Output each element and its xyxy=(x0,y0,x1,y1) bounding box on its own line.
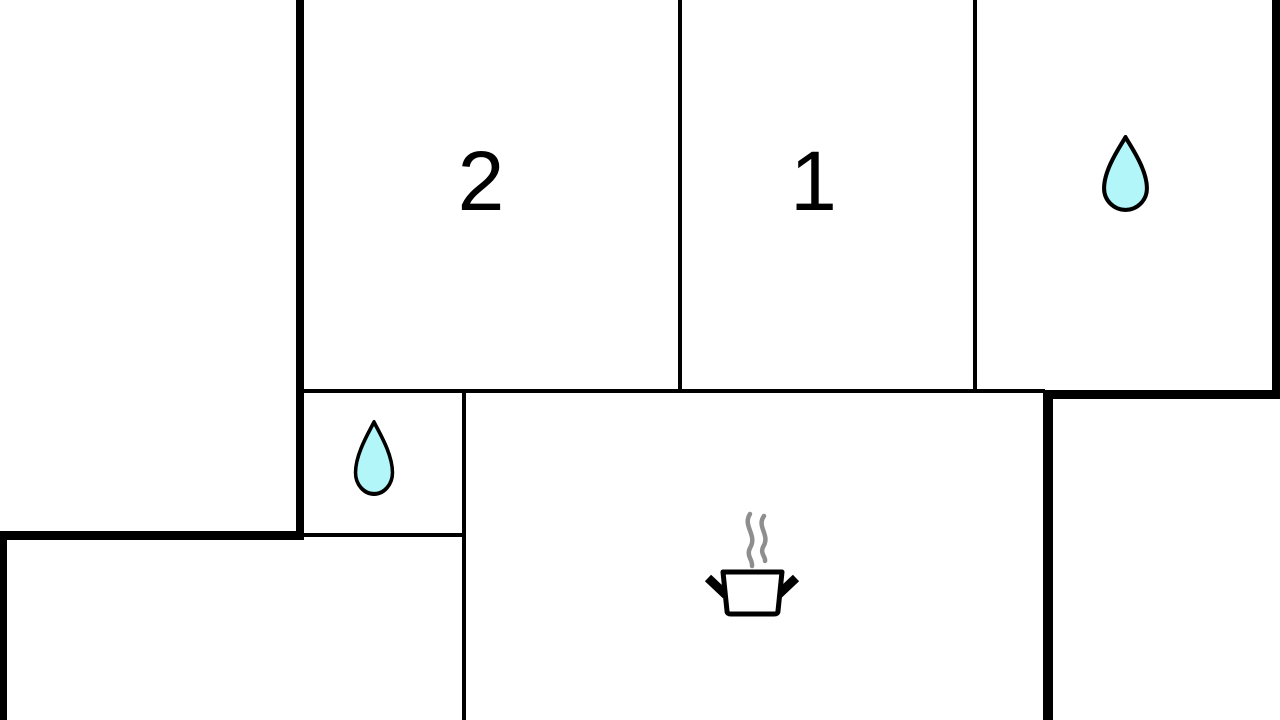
wall-exterior-mid-left-horizontal xyxy=(0,531,303,540)
steam-line-icon xyxy=(748,514,753,566)
wall-divider-bedroom1-bathroom xyxy=(973,0,977,392)
bedroom-1-label: 1 xyxy=(668,139,959,225)
water-drop-icon xyxy=(1100,134,1151,214)
wall-exterior-mid-vertical xyxy=(1043,390,1053,720)
wall-exterior-left-upper xyxy=(296,0,304,540)
cooking-pot-icon xyxy=(700,505,804,620)
floor-plan: 2 1 xyxy=(0,0,1280,720)
steam-line-icon xyxy=(762,516,766,561)
wall-horizontal-mid xyxy=(300,389,1045,393)
pot-body xyxy=(723,572,782,614)
wall-kitchen-left xyxy=(462,391,466,720)
wall-bathroom-small-bottom xyxy=(300,533,464,537)
wall-exterior-left-lower xyxy=(0,535,7,720)
wall-exterior-right xyxy=(1272,0,1280,399)
water-drop-icon xyxy=(352,419,396,498)
bedroom-2-label: 2 xyxy=(294,139,668,225)
wall-exterior-mid-right-horizontal xyxy=(1043,390,1280,399)
